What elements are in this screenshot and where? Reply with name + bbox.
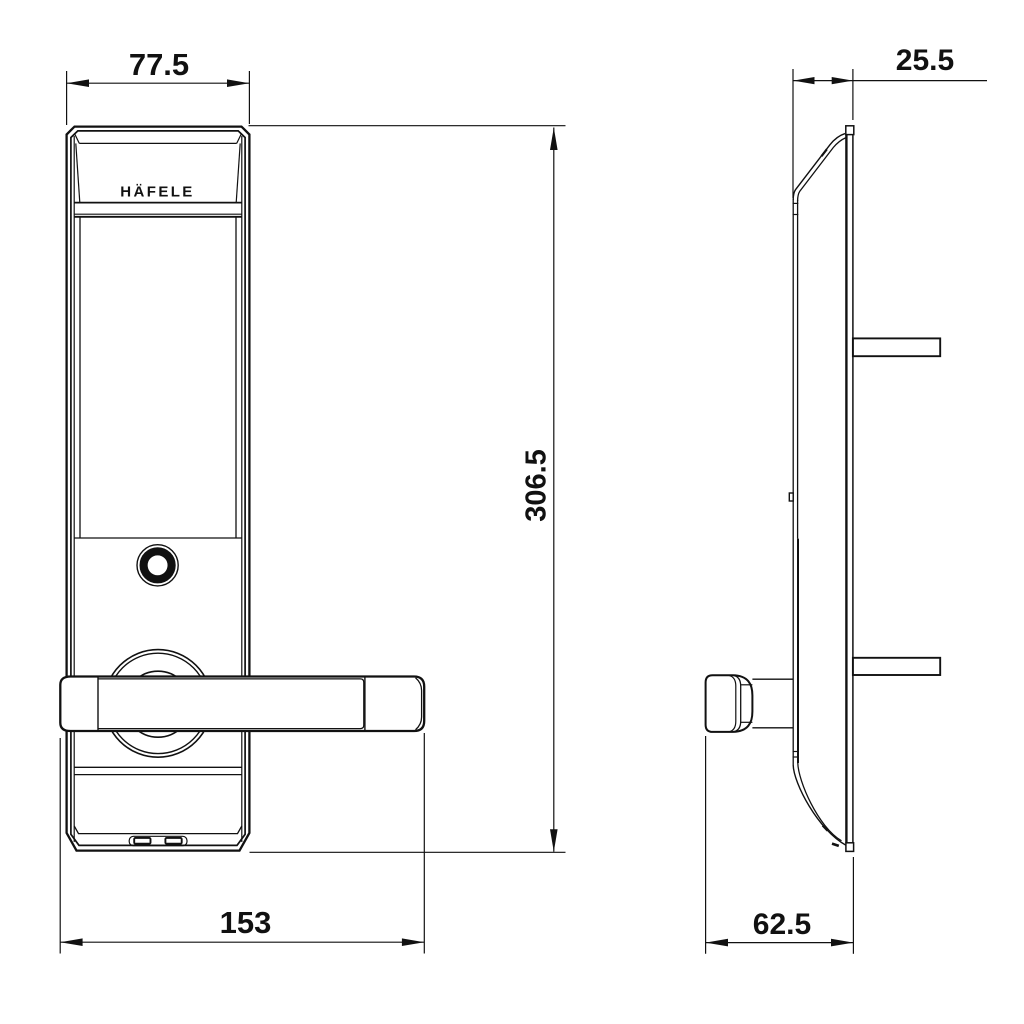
svg-text:62.5: 62.5 [753, 908, 811, 941]
svg-text:HÄFELE: HÄFELE [120, 184, 194, 201]
svg-text:77.5: 77.5 [129, 47, 189, 82]
svg-text:25.5: 25.5 [896, 44, 954, 77]
svg-text:153: 153 [220, 905, 272, 940]
svg-text:306.5: 306.5 [520, 449, 552, 522]
